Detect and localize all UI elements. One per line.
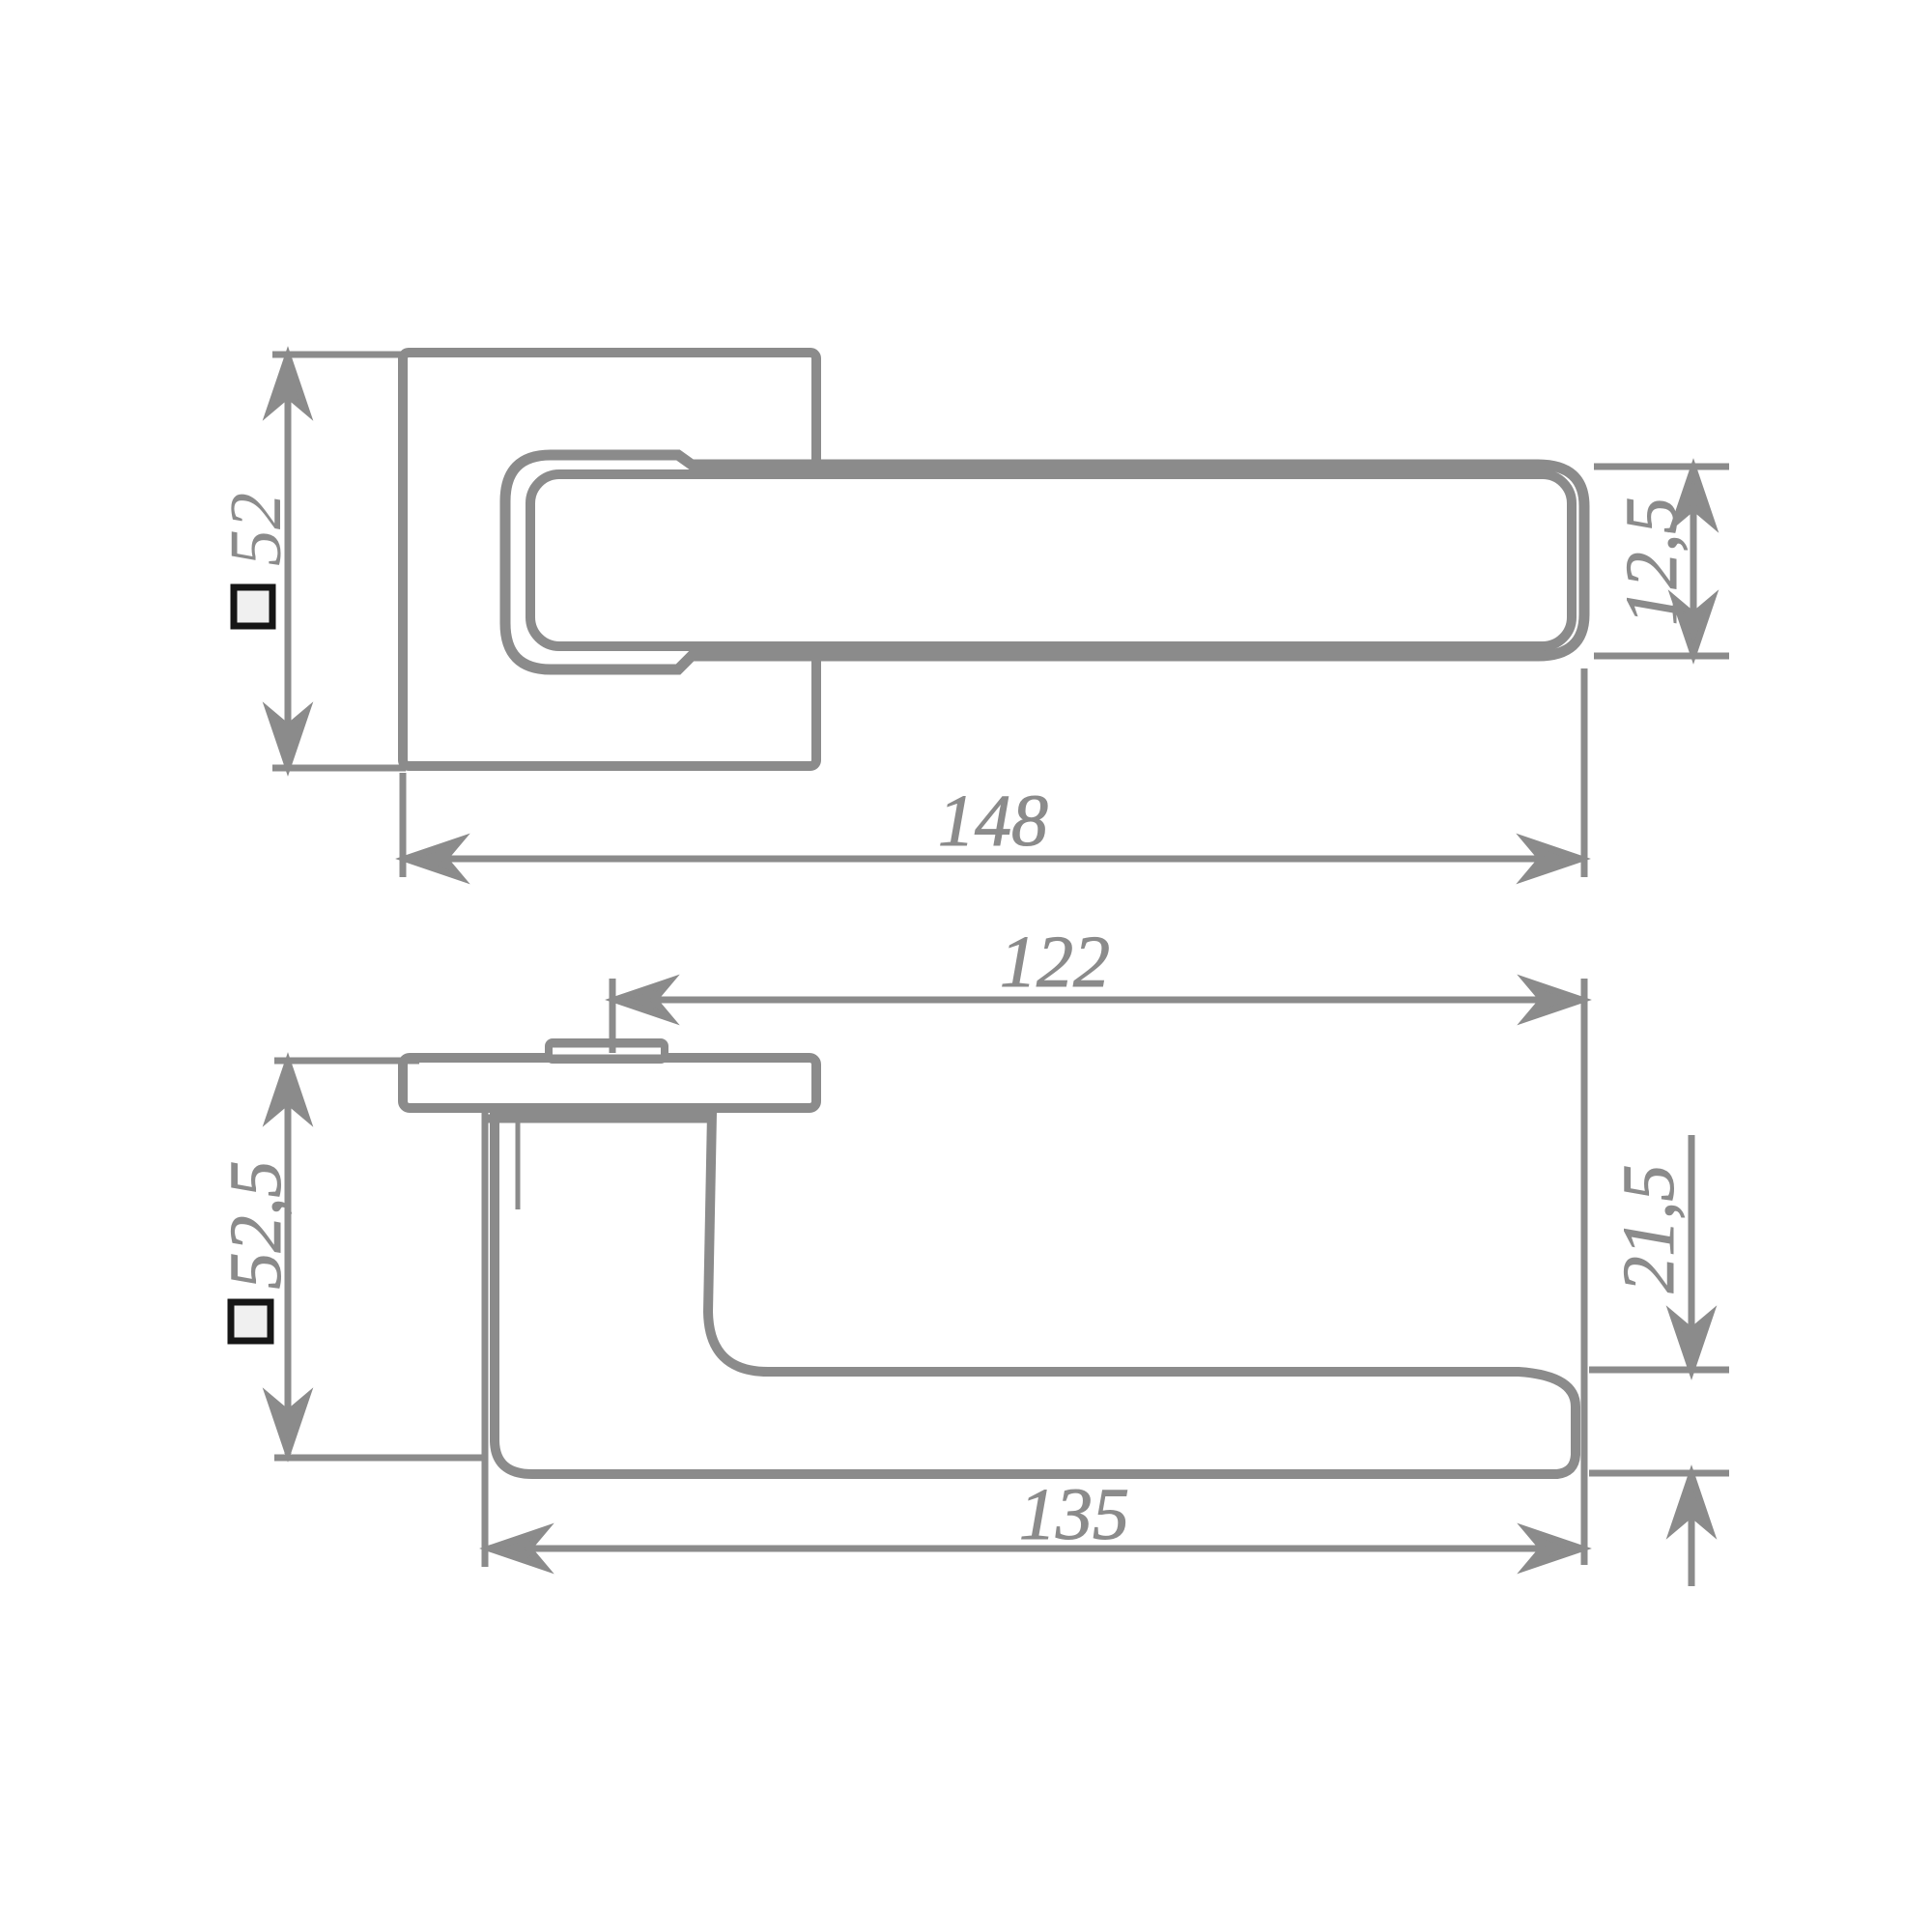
dim-label-lever-reach: 135 [1019, 1474, 1129, 1555]
dim-label-overall-height: 52,5 [215, 1161, 297, 1290]
square-section-symbol [231, 1302, 270, 1341]
side-rosette-plate [403, 1058, 816, 1108]
dim-label-overall-length: 148 [938, 781, 1048, 862]
side-lever-profile [495, 1113, 1576, 1474]
dim-label-lever-thickness: 12,5 [1611, 497, 1692, 626]
square-section-symbol [234, 587, 272, 626]
dim-label-rosette-size: 52 [215, 493, 297, 566]
side-view: 122 52,5 21,5 135 [215, 922, 1729, 1586]
side-dim-overall-height [270, 1061, 485, 1458]
front-view: 52 148 12,5 [215, 353, 1729, 877]
dim-label-lever-projection: 122 [1000, 922, 1110, 1003]
front-lever-inner-contour [530, 474, 1572, 646]
technical-drawing-page: 52 148 12,5 [0, 0, 1932, 1932]
technical-drawing: 52 148 12,5 [0, 0, 1932, 1932]
dim-label-lever-end-height: 21,5 [1608, 1165, 1690, 1293]
